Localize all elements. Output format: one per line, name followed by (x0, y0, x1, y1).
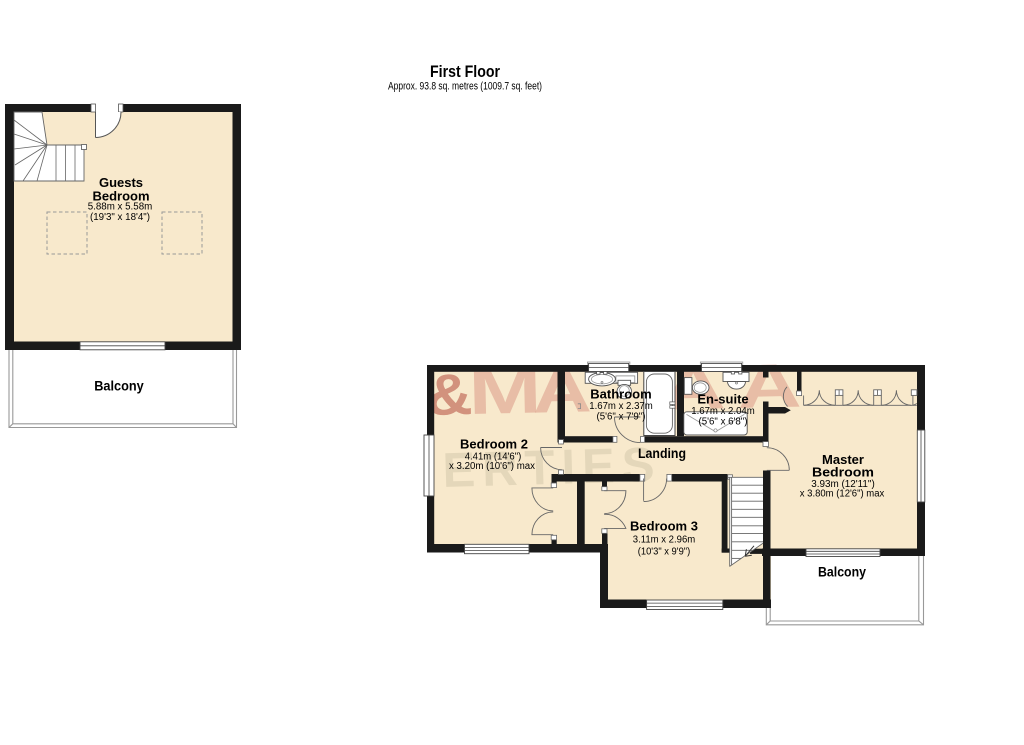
svg-text:1.67m x 2.37m: 1.67m x 2.37m (589, 401, 653, 412)
svg-text:Bedroom 3: Bedroom 3 (630, 519, 698, 534)
svg-text:Landing: Landing (638, 446, 686, 461)
svg-text:x 3.80m (12'6") max: x 3.80m (12'6") max (800, 488, 885, 499)
svg-text:(5'6" x 7'9"): (5'6" x 7'9") (597, 412, 646, 423)
svg-text:Balcony: Balcony (94, 379, 144, 394)
svg-text:First Floor: First Floor (430, 62, 500, 81)
svg-text:Bathroom: Bathroom (590, 387, 651, 402)
svg-text:Approx. 93.8 sq. metres (1009.: Approx. 93.8 sq. metres (1009.7 sq. feet… (388, 81, 542, 93)
svg-text:x 3.20m (10'6") max: x 3.20m (10'6") max (449, 461, 535, 472)
svg-text:Bedroom 2: Bedroom 2 (460, 437, 528, 452)
svg-text:Balcony: Balcony (818, 565, 866, 580)
svg-text:Bedroom: Bedroom (812, 465, 874, 480)
svg-text:5.88m x 5.58m: 5.88m x 5.58m (88, 202, 153, 213)
svg-text:3.11m x 2.96m: 3.11m x 2.96m (633, 535, 696, 546)
svg-text:En-suite: En-suite (697, 392, 748, 407)
svg-text:(19'3" x 18'4"): (19'3" x 18'4") (90, 212, 150, 223)
svg-text:1.67m x 2.04m: 1.67m x 2.04m (691, 406, 755, 417)
svg-text:(10'3" x 9'9"): (10'3" x 9'9") (638, 547, 691, 558)
svg-text:(5'6" x 6'8"): (5'6" x 6'8") (699, 417, 748, 428)
